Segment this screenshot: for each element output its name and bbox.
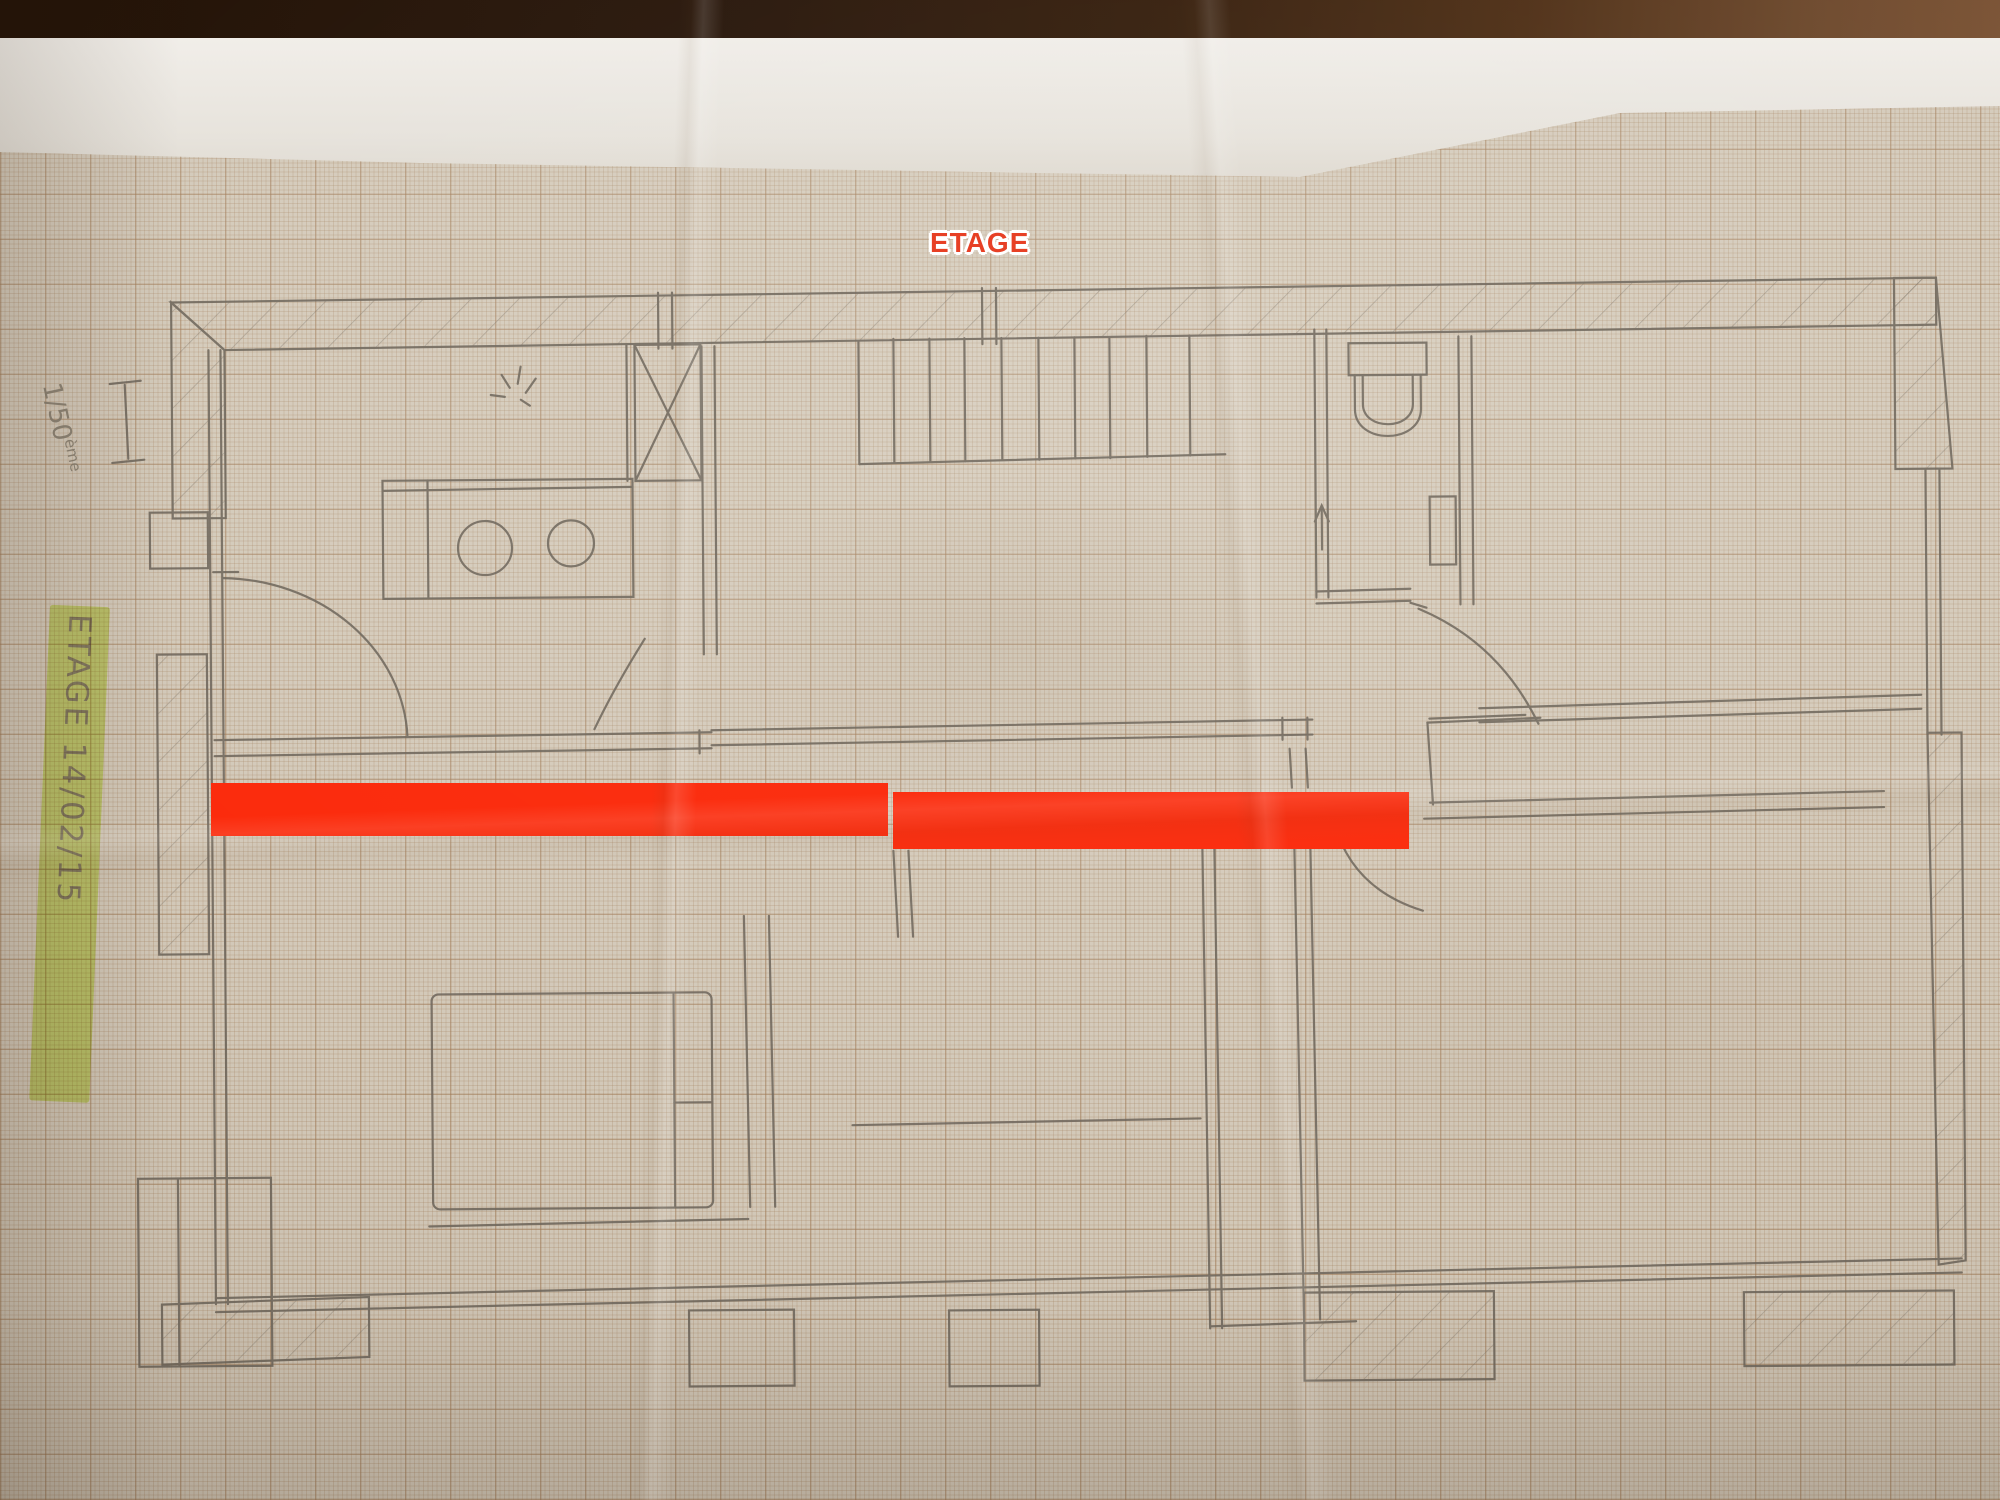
bed — [432, 992, 714, 1209]
balcony-door-arc — [223, 577, 407, 738]
kitchen-counter — [382, 479, 633, 599]
kitchen-door-arc — [594, 639, 646, 729]
graph-paper — [0, 0, 2000, 1500]
red-marker-bar — [211, 783, 888, 836]
red-marker-bar — [893, 792, 1409, 849]
scale-dimension-line — [110, 381, 145, 463]
red-marker-bars — [211, 783, 1409, 849]
ceiling-light-symbol — [491, 367, 536, 406]
hand-basin — [1430, 496, 1457, 564]
staircase — [858, 335, 1225, 464]
floor-plan-photo: ETAGE 14/02/15 1/50ème ETAGE — [0, 0, 2000, 1500]
shower-box — [626, 344, 701, 481]
door-arcs — [213, 562, 1540, 920]
pencil-floor-plan — [0, 0, 2000, 1500]
toilet — [1348, 343, 1427, 437]
floor-title-label: ETAGE — [930, 227, 1029, 259]
handwritten-date-note: ETAGE 14/02/15 — [49, 613, 97, 906]
